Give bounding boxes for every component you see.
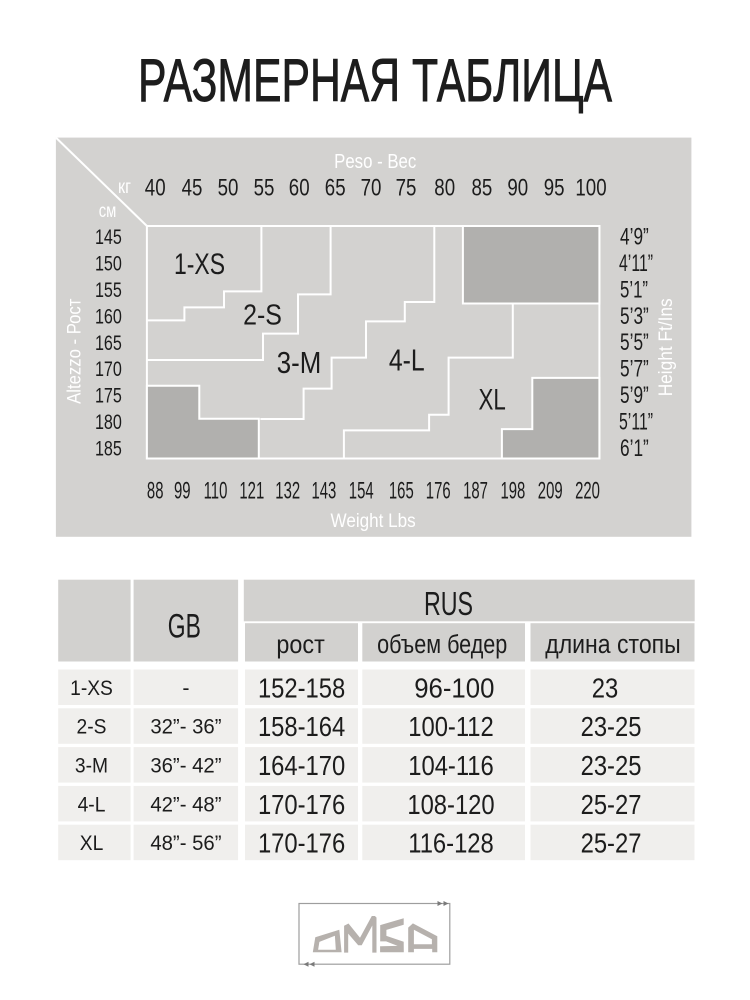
- svg-text:145: 145: [95, 226, 122, 250]
- svg-text:кг: кг: [118, 176, 131, 198]
- svg-text:1-XS: 1-XS: [174, 247, 225, 281]
- svg-text:GB: GB: [168, 607, 201, 646]
- svg-text:25-27: 25-27: [581, 788, 642, 820]
- svg-text:132: 132: [275, 478, 300, 504]
- svg-text:88: 88: [147, 478, 164, 504]
- svg-text:Altezzo - Рост: Altezzo - Рост: [64, 299, 85, 404]
- svg-text:32”- 36”: 32”- 36”: [150, 715, 221, 739]
- svg-text:2-S: 2-S: [243, 299, 282, 331]
- svg-text:165: 165: [389, 478, 414, 504]
- svg-text:165: 165: [95, 332, 122, 356]
- svg-text:170-176: 170-176: [258, 827, 345, 859]
- svg-text:187: 187: [463, 478, 488, 504]
- svg-text:209: 209: [538, 478, 563, 504]
- svg-text:170: 170: [95, 358, 122, 382]
- svg-text:3-M: 3-M: [75, 755, 108, 778]
- svg-text:80: 80: [434, 174, 455, 201]
- svg-text:Peso - Вес: Peso - Вес: [334, 149, 416, 172]
- svg-text:85: 85: [471, 174, 492, 201]
- svg-text:45: 45: [182, 174, 203, 201]
- svg-text:4’9”: 4’9”: [620, 224, 649, 250]
- svg-text:5’9”: 5’9”: [620, 382, 649, 408]
- svg-text:180: 180: [95, 411, 122, 435]
- svg-text:100: 100: [575, 174, 606, 201]
- svg-text:40: 40: [145, 174, 166, 201]
- svg-text:6’1”: 6’1”: [620, 435, 649, 461]
- svg-text:55: 55: [254, 174, 275, 201]
- svg-text:185: 185: [95, 437, 122, 461]
- svg-text:170-176: 170-176: [258, 788, 345, 820]
- svg-text:116-128: 116-128: [408, 827, 494, 859]
- svg-text:108-120: 108-120: [407, 788, 494, 820]
- svg-text:158-164: 158-164: [258, 710, 345, 742]
- svg-text:4-L: 4-L: [389, 343, 425, 377]
- svg-text:220: 220: [575, 478, 600, 504]
- svg-text:104-116: 104-116: [408, 749, 494, 781]
- svg-text:96-100: 96-100: [414, 672, 494, 703]
- svg-text:110: 110: [204, 478, 228, 504]
- svg-text:99: 99: [174, 478, 191, 504]
- svg-text:5’5”: 5’5”: [620, 330, 649, 356]
- svg-text:50: 50: [218, 174, 239, 201]
- svg-text:23-25: 23-25: [581, 710, 642, 742]
- svg-text:5’11”: 5’11”: [619, 409, 653, 435]
- svg-text:95: 95: [544, 174, 565, 201]
- svg-text:см: см: [99, 200, 117, 221]
- svg-text:150: 150: [95, 252, 122, 276]
- svg-text:121: 121: [239, 478, 264, 504]
- svg-text:рост: рост: [276, 631, 324, 659]
- svg-text:XL: XL: [479, 382, 506, 416]
- svg-text:42”- 48”: 42”- 48”: [150, 793, 221, 817]
- svg-text:2-S: 2-S: [77, 716, 107, 739]
- svg-text:1-XS: 1-XS: [70, 677, 113, 700]
- svg-text:36”- 42”: 36”- 42”: [150, 754, 221, 778]
- svg-text:70: 70: [361, 174, 382, 201]
- svg-text:4-L: 4-L: [78, 793, 106, 816]
- svg-text:155: 155: [95, 279, 122, 303]
- svg-text:5’7”: 5’7”: [620, 356, 649, 382]
- svg-text:длина стопы: длина стопы: [545, 631, 680, 659]
- svg-text:160: 160: [95, 305, 122, 329]
- svg-text:154: 154: [349, 478, 374, 504]
- svg-text:164-170: 164-170: [258, 749, 345, 781]
- svg-text:152-158: 152-158: [258, 672, 345, 704]
- svg-text:5’1”: 5’1”: [620, 277, 648, 304]
- svg-text:175: 175: [95, 384, 122, 408]
- svg-text:3-M: 3-M: [277, 346, 322, 381]
- svg-text:Height Ft/Ins: Height Ft/Ins: [655, 298, 676, 396]
- svg-text:Weight Lbs: Weight Lbs: [331, 510, 416, 531]
- svg-text:48”- 56”: 48”- 56”: [150, 832, 221, 856]
- svg-text:25-27: 25-27: [581, 827, 642, 859]
- svg-text:65: 65: [325, 174, 346, 201]
- svg-text:23: 23: [592, 672, 618, 704]
- svg-text:5’3”: 5’3”: [620, 303, 649, 329]
- svg-text:176: 176: [426, 478, 451, 504]
- svg-text:198: 198: [500, 478, 525, 504]
- svg-text:75: 75: [396, 174, 417, 201]
- svg-text:90: 90: [507, 174, 528, 201]
- svg-text:23-25: 23-25: [581, 749, 642, 781]
- svg-text:-: -: [182, 676, 189, 700]
- svg-text:RUS: RUS: [424, 586, 473, 623]
- svg-text:100-112: 100-112: [408, 710, 494, 742]
- svg-text:XL: XL: [80, 832, 104, 855]
- svg-text:4’11”: 4’11”: [619, 251, 653, 277]
- svg-text:60: 60: [289, 174, 310, 201]
- svg-text:143: 143: [311, 478, 336, 504]
- svg-text:РАЗМЕРНАЯ ТАБЛИЦА: РАЗМЕРНАЯ ТАБЛИЦА: [138, 48, 612, 115]
- svg-text:объем бедер: объем бедер: [377, 631, 507, 659]
